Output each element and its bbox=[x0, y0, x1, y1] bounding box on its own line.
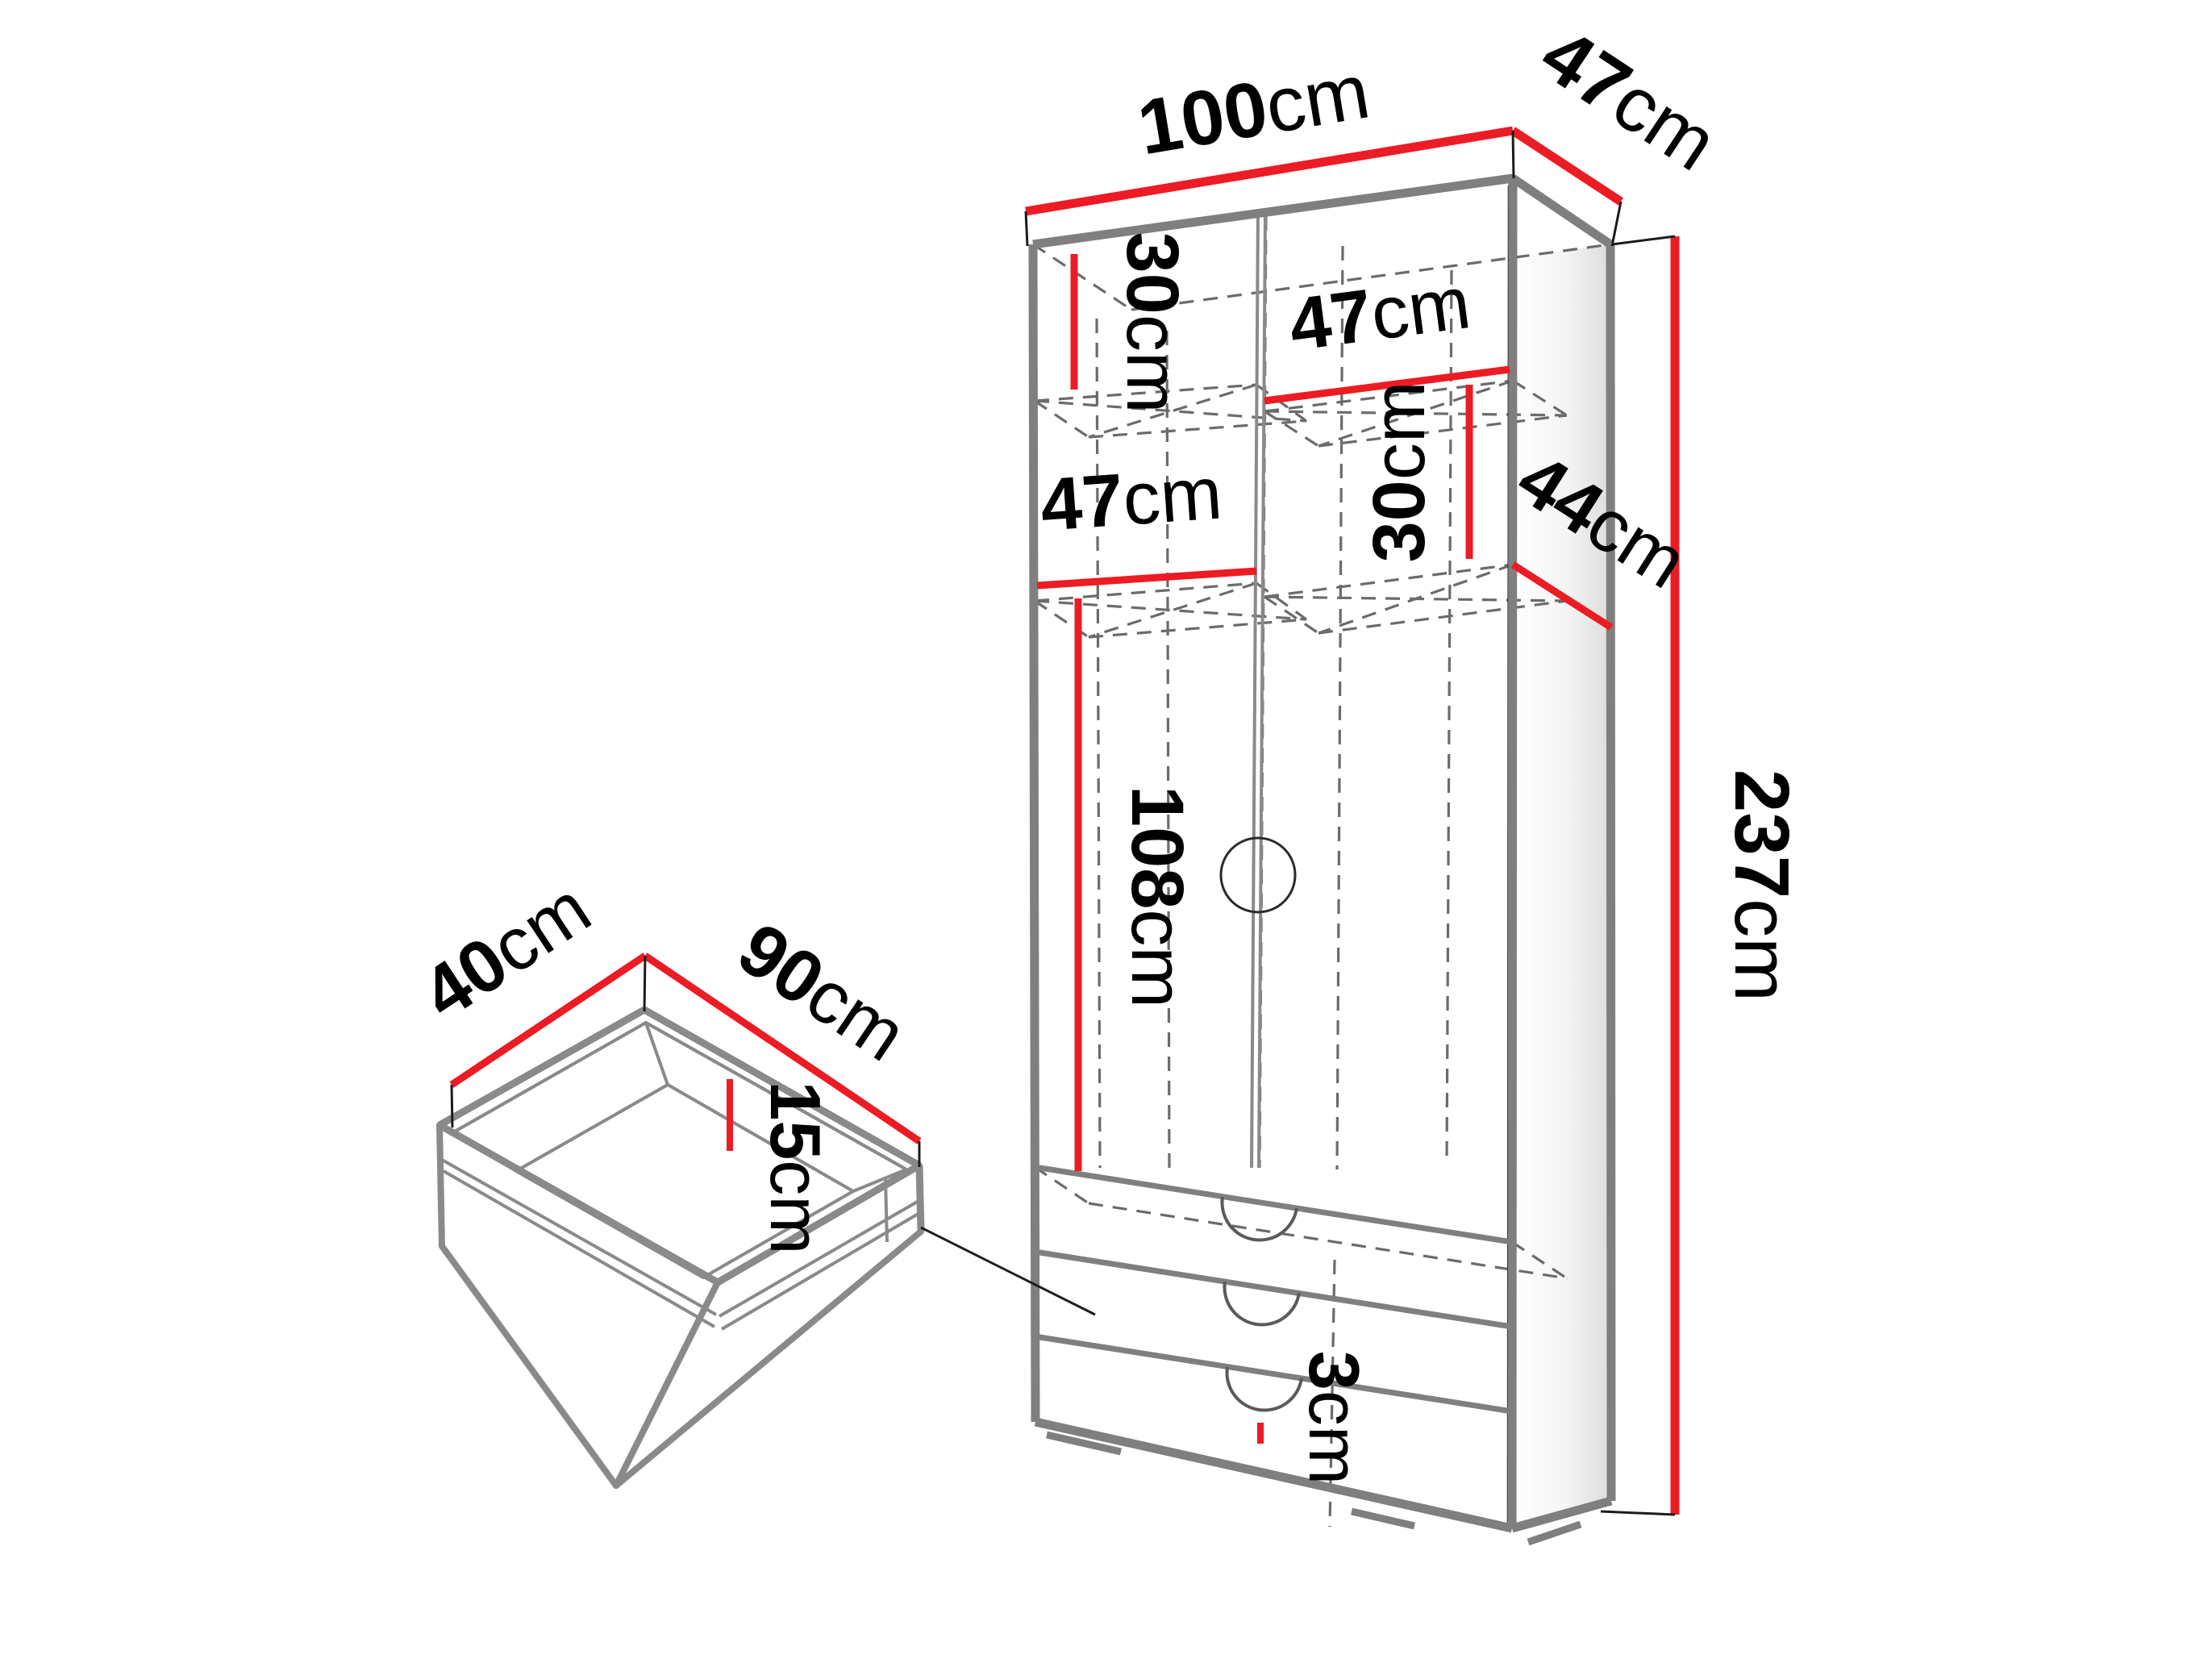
dim-label-rightgap-30cm-unit: cm bbox=[1358, 381, 1440, 481]
dim-label-hanging-108cm-unit: cm bbox=[1116, 909, 1198, 1008]
dim-label-leftsection-47cm-unit: cm bbox=[1120, 452, 1224, 540]
dim-label-rightgap-30cm: 30cm bbox=[1358, 381, 1440, 563]
tick-47cm-rear bbox=[1612, 202, 1621, 246]
dim-label-height-237cm-unit: cm bbox=[1718, 898, 1805, 1002]
wardrobe-side-panel bbox=[1512, 178, 1612, 1528]
tick-237cm-bottom bbox=[1601, 1511, 1675, 1515]
dim-label-width-100cm-unit: cm bbox=[1260, 48, 1376, 150]
dim-label-hanging-108cm: 108cm bbox=[1116, 786, 1198, 1008]
dim-label-rightgap-30cm-number: 30 bbox=[1358, 480, 1440, 562]
dim-label-width-100cm-number: 100 bbox=[1132, 65, 1274, 172]
dim-label-plinth-3cm: 3cm bbox=[1294, 1351, 1374, 1485]
cabinet-front-right-edge bbox=[1512, 178, 1513, 1528]
dim-label-topshelf-30cm: 30cm bbox=[1111, 232, 1193, 414]
dim-label-drawer-15cm-number: 15 bbox=[756, 1081, 835, 1160]
dim-label-topshelf-30cm-unit: cm bbox=[1111, 315, 1193, 414]
dim-label-drawer-40cm: 40cm bbox=[408, 867, 605, 1036]
cabinet-left-edge bbox=[1033, 244, 1035, 1422]
tick-100cm-left bbox=[1026, 211, 1027, 246]
tick-drawer-apex bbox=[644, 956, 645, 1011]
tick-40cm-left bbox=[452, 1085, 452, 1128]
foot-side bbox=[1528, 1524, 1581, 1542]
cabinet-rear-right-edge bbox=[1610, 244, 1611, 1501]
drawer-panel-end-edge bbox=[919, 1165, 921, 1232]
dim-label-plinth-3cm-number: 3 bbox=[1294, 1351, 1374, 1390]
dim-label-leftsection-47cm-number: 47 bbox=[1038, 459, 1126, 547]
dim-label-plinth-3cm-unit: cm bbox=[1294, 1390, 1374, 1485]
dim-label-drawer-15cm-unit: cm bbox=[756, 1160, 835, 1254]
diagram-stage: 100cm47cm30cm47cm30cm44cm47cm108cm237cm3… bbox=[0, 0, 2212, 1659]
tick-237cm-top bbox=[1612, 236, 1675, 244]
dim-label-height-237cm-number: 237 bbox=[1718, 769, 1805, 898]
tick-apex bbox=[1513, 131, 1514, 178]
dim-label-height-237cm: 237cm bbox=[1718, 769, 1805, 1002]
dim-label-drawer-15cm: 15cm bbox=[756, 1081, 835, 1254]
foot-right bbox=[1352, 1511, 1414, 1526]
wardrobe-dimension-diagram: 100cm47cm30cm47cm30cm44cm47cm108cm237cm3… bbox=[0, 0, 2212, 1659]
dim-label-width-100cm: 100cm bbox=[1132, 48, 1376, 171]
dim-label-drawer-90cm: 90cm bbox=[724, 907, 921, 1077]
dim-label-leftsection-47cm: 47cm bbox=[1038, 452, 1225, 546]
dim-label-rightshelf-47cm-number: 47 bbox=[1285, 274, 1377, 366]
dim-label-hanging-108cm-number: 108 bbox=[1116, 786, 1198, 910]
dim-label-topshelf-30cm-number: 30 bbox=[1111, 232, 1193, 315]
dim-label-rightshelf-47cm-unit: cm bbox=[1366, 261, 1475, 356]
drawer-panel-end-seam bbox=[885, 1179, 887, 1242]
